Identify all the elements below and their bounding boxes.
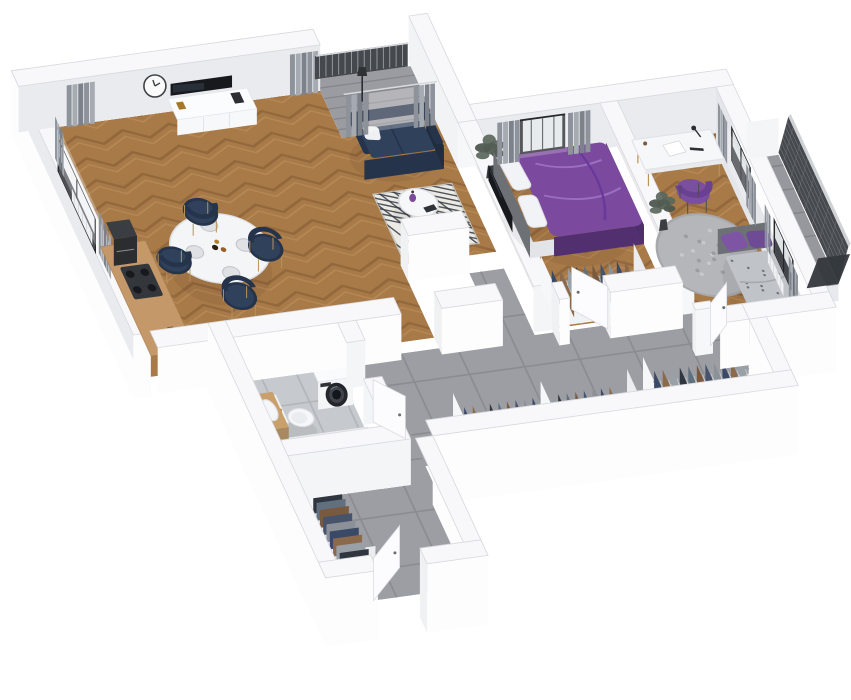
wall-south-entry-a xyxy=(318,555,377,647)
floor-plan-3d-render xyxy=(0,0,851,700)
floor-plan-stage: 3D isometric floor plan render of a two-… xyxy=(0,0,851,700)
wall-south-entry-b xyxy=(420,540,488,633)
wall-between-bedrooms-b xyxy=(692,301,713,356)
wall-partition-living xyxy=(401,211,470,282)
wall-south-bedroom-1-b xyxy=(603,266,683,339)
wall-clock xyxy=(144,75,166,97)
wall-south-living-b xyxy=(434,283,503,354)
